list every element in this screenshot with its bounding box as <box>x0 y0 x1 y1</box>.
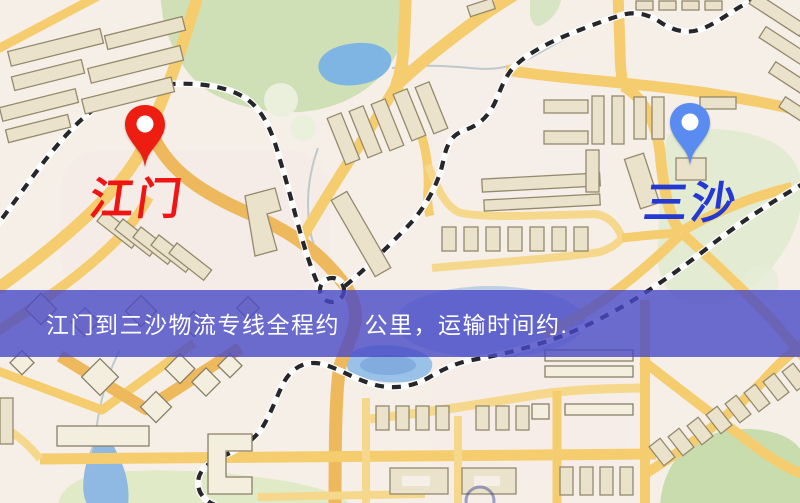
route-info-text: 江门到三沙物流专线全程约 公里，运输时间约. <box>0 290 800 340</box>
jiangmen-pin-icon[interactable] <box>121 102 169 170</box>
map-viewport[interactable]: 江门到三沙物流专线全程约 公里，运输时间约. 江门 三沙 <box>0 0 800 503</box>
jiangmen-label: 江门 <box>87 178 187 222</box>
route-info-banner: 江门到三沙物流专线全程约 公里，运输时间约. <box>0 290 800 357</box>
sansha-pin-icon[interactable] <box>666 100 714 168</box>
sansha-label: 三沙 <box>641 182 741 226</box>
map-canvas[interactable] <box>0 0 800 503</box>
